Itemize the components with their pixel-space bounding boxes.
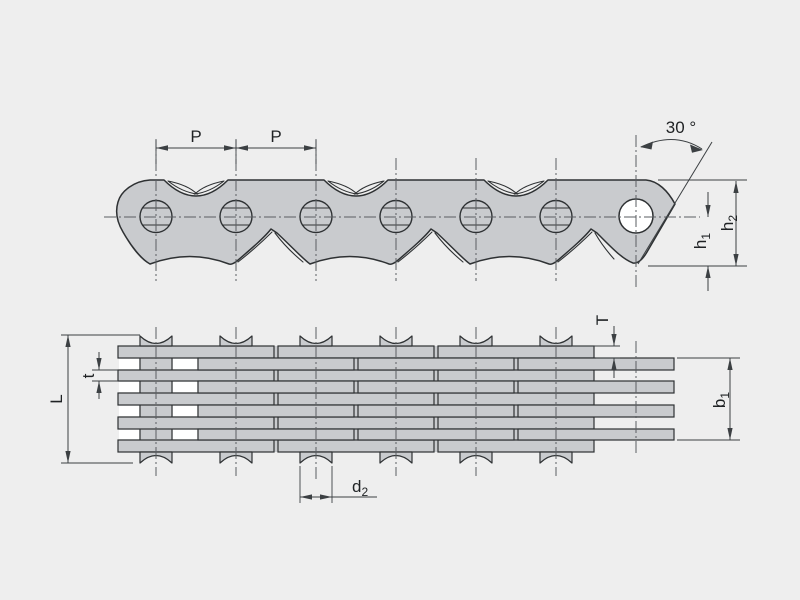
d2-label: d2: [352, 477, 368, 499]
technical-drawing: P P 30 ° h1 h2: [0, 0, 800, 600]
link-plate-bar: [278, 346, 434, 358]
link-plate-bar: [518, 429, 674, 440]
link-plate-bar: [438, 346, 594, 358]
link-plate-bar: [278, 370, 434, 381]
b1-label: b1: [710, 392, 732, 408]
dimension-t: t: [79, 352, 118, 399]
link-plate-bar: [518, 358, 674, 370]
t-label: t: [79, 373, 98, 378]
link-plate-bar: [358, 381, 514, 393]
link-plate-bar: [118, 393, 274, 405]
link-plate-bar: [438, 370, 594, 381]
link-plate-bar: [198, 381, 354, 393]
pitch-label-2: P: [270, 127, 281, 146]
link-plate-bar: [438, 417, 594, 429]
h1-label: h1: [691, 233, 713, 249]
pitch-label-1: P: [190, 127, 201, 146]
dimension-b1: b1: [677, 358, 740, 440]
link-plate-bar: [118, 417, 274, 429]
link-plate-bar: [518, 381, 674, 393]
h2-label: h2: [718, 215, 740, 231]
link-plate-bar: [278, 440, 434, 452]
link-plate-bar: [358, 358, 514, 370]
plan-view: L t T b1: [47, 315, 740, 503]
link-plate-bar: [358, 429, 514, 440]
dimension-pitch: P P: [156, 127, 316, 164]
link-plate-bar: [278, 417, 434, 429]
link-plate-bar: [278, 393, 434, 405]
L-label: L: [47, 394, 66, 403]
link-plate-bar: [118, 440, 274, 452]
link-plate-bar: [198, 405, 354, 417]
link-plate-bar: [198, 358, 354, 370]
link-plate-bar: [518, 405, 674, 417]
link-plate-bar: [118, 370, 274, 381]
angle-label: 30 °: [666, 118, 696, 137]
side-view: P P 30 ° h1 h2: [104, 118, 747, 291]
link-plate-bar: [358, 405, 514, 417]
link-plate-bar: [198, 429, 354, 440]
T-label: T: [593, 315, 612, 325]
drawing-canvas: P P 30 ° h1 h2: [0, 0, 800, 600]
link-plate-bar: [118, 346, 274, 358]
dimension-d2: d2: [300, 466, 377, 503]
link-plate-bar: [438, 393, 594, 405]
link-plate-bar: [438, 440, 594, 452]
